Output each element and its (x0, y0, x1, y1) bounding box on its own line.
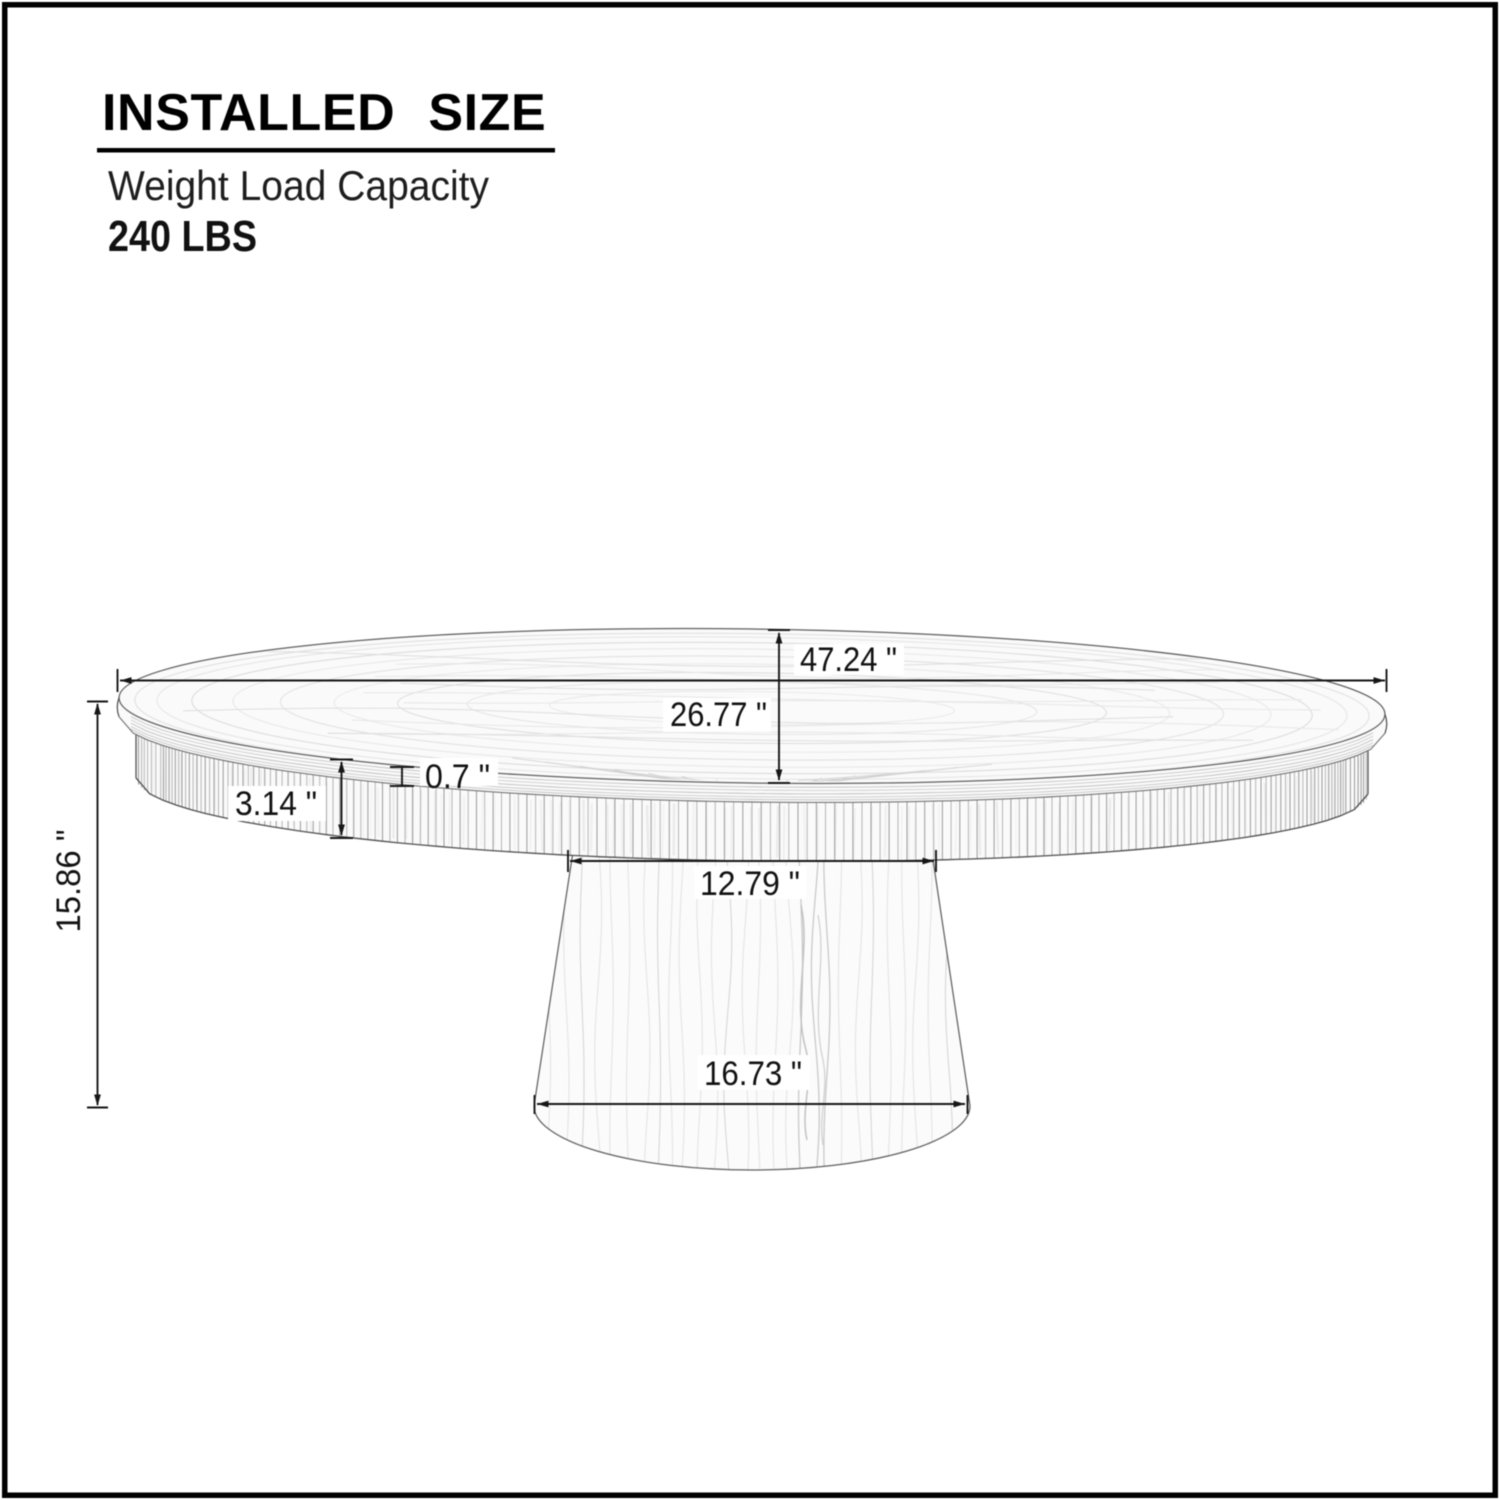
svg-text:Weight Load Capacity: Weight Load Capacity (108, 162, 489, 209)
svg-text:12.79 ": 12.79 " (700, 865, 800, 903)
svg-text:47.24 ": 47.24 " (800, 641, 897, 679)
svg-text:16.73 ": 16.73 " (704, 1055, 802, 1093)
svg-text:15.86 ": 15.86 " (50, 830, 88, 933)
svg-text:0.7 ": 0.7 " (425, 758, 490, 796)
svg-text:240 LBS: 240 LBS (108, 212, 257, 261)
svg-text:INSTALLED SIZE: INSTALLED SIZE (102, 84, 546, 142)
svg-text:26.77 ": 26.77 " (670, 696, 767, 734)
svg-text:3.14 ": 3.14 " (235, 785, 317, 823)
